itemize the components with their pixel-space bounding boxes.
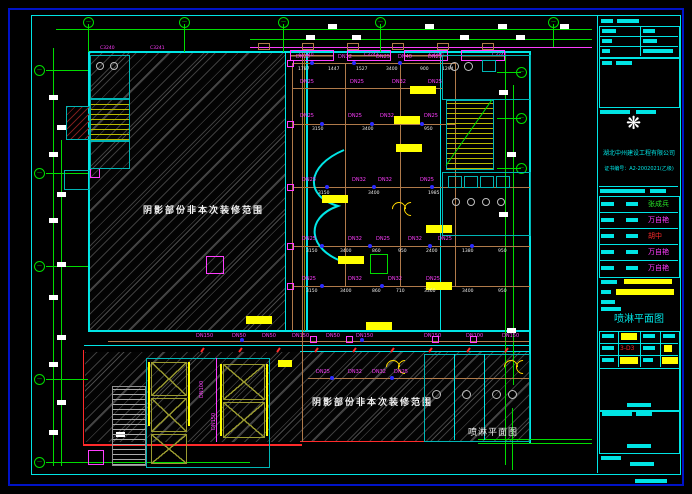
stall — [448, 176, 462, 188]
tb-minibar — [602, 358, 614, 362]
tb-grid-line — [599, 343, 678, 344]
tb-minibar — [635, 479, 667, 483]
sprinkler-head — [430, 185, 434, 189]
pipe-label: DN150 — [424, 334, 441, 339]
lintel-block — [302, 43, 314, 50]
pipe-label: DN25 — [424, 114, 438, 119]
pipe-row-f — [292, 286, 530, 287]
tb-minibar — [601, 202, 614, 206]
region-note-upper: 阴影部份非本次装修范围 — [143, 203, 264, 216]
highlight — [396, 144, 422, 152]
dim-tick — [507, 152, 516, 157]
fixture — [497, 198, 505, 206]
axis-stem-left — [46, 379, 88, 380]
pipe-label: DN25 — [428, 80, 442, 85]
region-note-lower: 阴影部份非本次装修范围 — [312, 395, 433, 408]
tb-minibar — [601, 456, 621, 460]
highlight — [322, 195, 348, 203]
dim-text: 1380 — [462, 249, 473, 254]
riser-pipe — [216, 358, 217, 442]
tb-table-line — [599, 46, 678, 47]
tb-notes-box — [599, 58, 680, 108]
pipe-label: DN25 — [302, 178, 316, 183]
axis-stem-left — [46, 266, 88, 267]
pipe-label: DN25 — [300, 80, 314, 85]
tb-minibar — [627, 403, 651, 407]
stall — [482, 60, 496, 72]
fixture — [452, 198, 460, 206]
stair-left — [90, 99, 130, 141]
pipe-row-a — [292, 63, 456, 64]
fixture — [492, 390, 501, 399]
elevator-shaft — [223, 402, 265, 438]
titleblock-divider — [597, 15, 598, 473]
dim-text: 3150 — [306, 249, 317, 254]
dim-line-top-2 — [250, 39, 592, 40]
axis-stem — [380, 24, 381, 52]
tb-minibar — [602, 412, 632, 416]
dim-tick — [57, 400, 66, 405]
dim-text: 1527 — [356, 67, 367, 72]
tb-minibar — [643, 39, 657, 43]
dim-text: 710 — [396, 289, 405, 294]
pipe-label: DN150 — [502, 334, 519, 339]
sprinkler-head — [320, 122, 324, 126]
tb-minibar — [663, 334, 675, 338]
tb-minibar — [601, 218, 614, 222]
window-label: C3240 — [100, 46, 115, 51]
sprinkler-head — [390, 376, 394, 380]
axis-bubble: — — [548, 17, 559, 28]
tb-minibar — [630, 462, 654, 466]
pipe-label: DN25 — [300, 114, 314, 119]
sprinkler-head — [310, 61, 314, 65]
stall — [480, 176, 494, 188]
pipe-label: DN32 — [388, 277, 402, 282]
pipe-label: DN32 — [380, 114, 394, 119]
dim-line-left-2 — [61, 140, 62, 466]
dim-tick — [49, 95, 58, 100]
stair-bottom-left — [112, 386, 146, 466]
dim-line-bottom-right-2 — [478, 443, 592, 444]
sprinkler-head — [330, 376, 334, 380]
signature: 万自艳 — [648, 248, 669, 256]
sprinkler-head — [368, 244, 372, 248]
stair-right — [446, 100, 494, 170]
tb-minibar — [602, 29, 616, 33]
dim-text: 3400 — [340, 249, 351, 254]
pipe-label: DN50 — [262, 334, 276, 339]
tb-minibar — [643, 358, 653, 362]
tb-grid-col — [640, 331, 641, 367]
dim-text: 3360 — [424, 289, 435, 294]
lintel-block — [258, 43, 270, 50]
wall-left-red — [83, 350, 84, 446]
valve — [287, 243, 294, 250]
pipe-label: DN40 — [398, 55, 412, 60]
window-label: C3241 — [150, 46, 165, 51]
elevator-shaft — [151, 398, 187, 432]
pipe-branch-v1 — [292, 63, 293, 331]
tb-yellow-cell — [620, 357, 638, 364]
dim-text: 3400 — [462, 289, 473, 294]
certificate-no: 证书编号：A2-2002021(乙级) — [598, 166, 680, 173]
pipe-label: DN25 — [420, 178, 434, 183]
axis-bubble: — — [34, 457, 45, 468]
axis-bubble: — — [83, 17, 94, 28]
pipe-label: DN25 — [376, 55, 390, 60]
axis-stem — [88, 24, 89, 52]
dim-tick — [49, 430, 58, 435]
tb-minibar — [602, 39, 612, 43]
toilet-fixture — [96, 62, 104, 70]
dim-line-top-1 — [56, 29, 592, 30]
pipe-label: DN50 — [232, 334, 246, 339]
fixture — [508, 390, 517, 399]
dim-text: 3400 — [340, 289, 351, 294]
dim-tick — [49, 152, 58, 157]
valve-box — [206, 256, 224, 274]
highlight — [366, 322, 392, 330]
tb-minibar — [643, 346, 655, 350]
valve — [287, 121, 294, 128]
sprinkler-head — [420, 122, 424, 126]
valve — [310, 336, 317, 343]
shaft-rail — [148, 362, 150, 426]
dim-tick — [560, 24, 569, 29]
pipe-label: DN25 — [296, 55, 310, 60]
pipe-label: DN25 — [316, 370, 330, 375]
tb-minibar — [626, 218, 638, 222]
tb-minibar — [601, 266, 614, 270]
tb-minibar — [650, 189, 666, 193]
stall — [464, 176, 478, 188]
valve — [287, 60, 294, 67]
tb-minibar — [601, 307, 621, 311]
tb-minibar — [602, 49, 610, 53]
cad-sprinkler-plan-sheet: 阴影部份非本次装修范围 阴影部份非本次装修范围 C3240 C3241 C324… — [0, 0, 692, 494]
tb-minibar — [600, 189, 645, 193]
dim-tick — [57, 335, 66, 340]
fixture — [462, 390, 471, 399]
dim-text: 3400 — [368, 191, 379, 196]
axis-bubble: — — [375, 17, 386, 28]
pipe-label: DN32 — [348, 237, 362, 242]
tb-minibar — [602, 334, 614, 338]
sprinkler-head — [398, 61, 402, 65]
pipe-label: DN25 — [348, 114, 362, 119]
dim-text: 3400 — [362, 127, 373, 132]
fixture — [482, 198, 490, 206]
tb-minibar — [601, 19, 613, 23]
tb-grid-col — [618, 331, 619, 367]
dim-text: 900 — [420, 67, 429, 72]
dim-text: 3400 — [386, 67, 397, 72]
valve — [287, 184, 294, 191]
lintel-block — [392, 43, 404, 50]
highlight — [278, 360, 292, 367]
lintel-block — [437, 43, 449, 50]
dim-text: 3150 — [306, 289, 317, 294]
dim-tick — [352, 35, 361, 40]
dim-tick — [49, 295, 58, 300]
axis-bubble: — — [34, 65, 45, 76]
dim-text: 950 — [498, 249, 507, 254]
pipe-label: DN50 — [326, 334, 340, 339]
tb-minibar — [643, 49, 673, 53]
dim-text: 950 — [398, 249, 407, 254]
company-name: 湖北中州建设工程有限公司 — [598, 150, 680, 158]
tb-minibar — [601, 300, 615, 304]
pipe-label: DN150 — [196, 334, 213, 339]
fixture — [464, 62, 473, 71]
tb-minibar — [617, 19, 639, 23]
fixture — [432, 390, 441, 399]
tb-sig-line — [599, 244, 678, 245]
signature: 张成兵 — [648, 200, 669, 208]
dim-text: 950 — [498, 289, 507, 294]
tb-minibar — [601, 280, 617, 284]
signature: 胡中 — [648, 232, 662, 240]
pipe-label: DN32 — [348, 370, 362, 375]
shaft-rail — [220, 364, 222, 436]
elevator-shaft — [223, 364, 265, 400]
dim-tick — [306, 35, 315, 40]
fixture — [450, 62, 459, 71]
dim-text: 860 — [372, 289, 381, 294]
sprinkler-head — [470, 244, 474, 248]
drawing-title: 喷淋平面图 — [598, 313, 680, 327]
elevator-shaft — [151, 362, 187, 396]
tb-minibar — [626, 234, 638, 238]
highlight — [410, 86, 436, 94]
pipe-label: DN25 — [428, 55, 442, 60]
dim-tick — [328, 24, 337, 29]
sprinkler-head — [352, 61, 356, 65]
dim-text: 860 — [372, 249, 381, 254]
pipe-label: DN32 — [348, 277, 362, 282]
sprinkler-head — [320, 244, 324, 248]
axis-stem-left — [46, 70, 88, 71]
pipe-label: DN150 — [292, 334, 309, 339]
tb-table-col — [640, 26, 641, 56]
pipe-label: DN25 — [376, 237, 390, 242]
tb-minibar — [601, 234, 614, 238]
dim-text: 1787 — [298, 67, 309, 72]
sprinkler-head — [370, 122, 374, 126]
tb-yellow-bar — [624, 279, 672, 284]
sprinkler-head — [325, 185, 329, 189]
sprinkler-head — [428, 244, 432, 248]
tb-minibar — [616, 61, 632, 65]
tb-minibar — [626, 266, 638, 270]
lintel-block — [347, 43, 359, 50]
tb-sig-line — [599, 260, 678, 261]
wall-corridor-bottom — [84, 345, 530, 346]
dim-tick — [57, 192, 66, 197]
dim-tick — [460, 35, 469, 40]
axis-bubble: — — [34, 168, 45, 179]
tb-sig-line — [599, 228, 678, 229]
dim-tick — [57, 125, 66, 130]
dim-line-left-1 — [53, 48, 54, 466]
pipe-label: DN25 — [394, 370, 408, 375]
dim-text: 3150 — [312, 127, 323, 132]
pipe-label: DN32 — [352, 178, 366, 183]
dim-text: 3150 — [318, 191, 329, 196]
small-room-left — [64, 170, 90, 190]
wall-hatch-right — [285, 53, 286, 331]
tb-minibar — [601, 290, 611, 294]
sprinkler-head — [320, 284, 324, 288]
pipe-label: DN32 — [372, 370, 386, 375]
pipe-label: DN25 — [426, 277, 440, 282]
elevator-shaft — [151, 434, 187, 464]
dim-text: 950 — [424, 127, 433, 132]
wall-corridor-top — [88, 330, 530, 332]
pipe-label: DN32 — [338, 55, 352, 60]
company-logo-icon: ❋ — [626, 114, 641, 134]
tb-minibar — [643, 334, 655, 338]
axis-stem — [184, 24, 185, 52]
dim-tick — [57, 262, 66, 267]
sprinkler-head — [372, 185, 376, 189]
tb-minibar — [626, 250, 638, 254]
tb-yellow-cell — [621, 333, 637, 340]
valve — [346, 336, 353, 343]
fixture — [467, 198, 475, 206]
tb-line — [599, 186, 678, 187]
dim-text: 2400 — [426, 249, 437, 254]
highlight — [338, 256, 364, 264]
pipe-label: DN25 — [438, 237, 452, 242]
axis-bubble: — — [179, 17, 190, 28]
inspection-box — [370, 254, 388, 274]
tb-minibar — [636, 412, 652, 416]
signature: 万自艳 — [648, 264, 669, 272]
stall — [496, 176, 510, 188]
shaft-left — [90, 141, 130, 169]
pipe-label: DN32 — [392, 80, 406, 85]
valve — [287, 283, 294, 290]
toilet-fixture — [110, 62, 118, 70]
tb-yellow-cell — [664, 345, 672, 352]
dim-text: 1447 — [328, 67, 339, 72]
tb-minibar — [626, 202, 638, 206]
plan-caption: 喷淋平面图 — [468, 425, 518, 438]
axis-bubble: — — [34, 261, 45, 272]
tb-minibar — [643, 29, 655, 33]
wall-region-b-top — [300, 351, 530, 352]
dim-tick — [49, 362, 58, 367]
tb-yellow-bar — [616, 289, 674, 295]
duct-room — [66, 106, 90, 140]
valve-box — [90, 168, 100, 178]
shaft-rail — [188, 362, 190, 426]
tb-minibar — [601, 250, 614, 254]
axis-bubble: — — [516, 113, 527, 124]
pipe-row-c — [292, 124, 456, 125]
drawing-number: 3-D3 — [620, 345, 634, 353]
tb-minibar — [602, 61, 612, 65]
tb-grid-col — [660, 331, 661, 367]
room-washroom-left — [90, 55, 130, 99]
sprinkler-head — [380, 284, 384, 288]
tb-grid-line — [599, 355, 678, 356]
pipe-label: DN25 — [350, 80, 364, 85]
pipe-label: DN100 — [466, 334, 483, 339]
tb-table-line — [599, 36, 678, 37]
signature: 万自艳 — [648, 216, 669, 224]
pipe-label: DN32 — [408, 237, 422, 242]
axis-bubble: — — [278, 17, 289, 28]
highlight — [246, 316, 272, 324]
dim-tick — [498, 24, 507, 29]
valve-box — [88, 450, 104, 465]
lintel-block — [482, 43, 494, 50]
pipe-main-corridor — [108, 341, 529, 342]
pipe-label: DN25 — [302, 277, 316, 282]
tb-minibar — [602, 346, 614, 350]
tb-yellow-cell — [662, 357, 678, 364]
dim-tick — [516, 35, 525, 40]
pipe-label: DN32 — [378, 178, 392, 183]
dim-tick — [425, 24, 434, 29]
tb-minibar — [627, 444, 651, 448]
axis-bubble: — — [34, 374, 45, 385]
shaft-rail — [266, 364, 268, 436]
pipe-label: DN150 — [356, 334, 373, 339]
wash-partition — [454, 354, 455, 440]
dim-text: 1985 — [428, 191, 439, 196]
pipe-label: DN25 — [302, 237, 316, 242]
dim-tick — [49, 218, 58, 223]
highlight — [394, 116, 420, 124]
axis-stem — [283, 24, 284, 52]
tb-sig-line — [599, 212, 678, 213]
